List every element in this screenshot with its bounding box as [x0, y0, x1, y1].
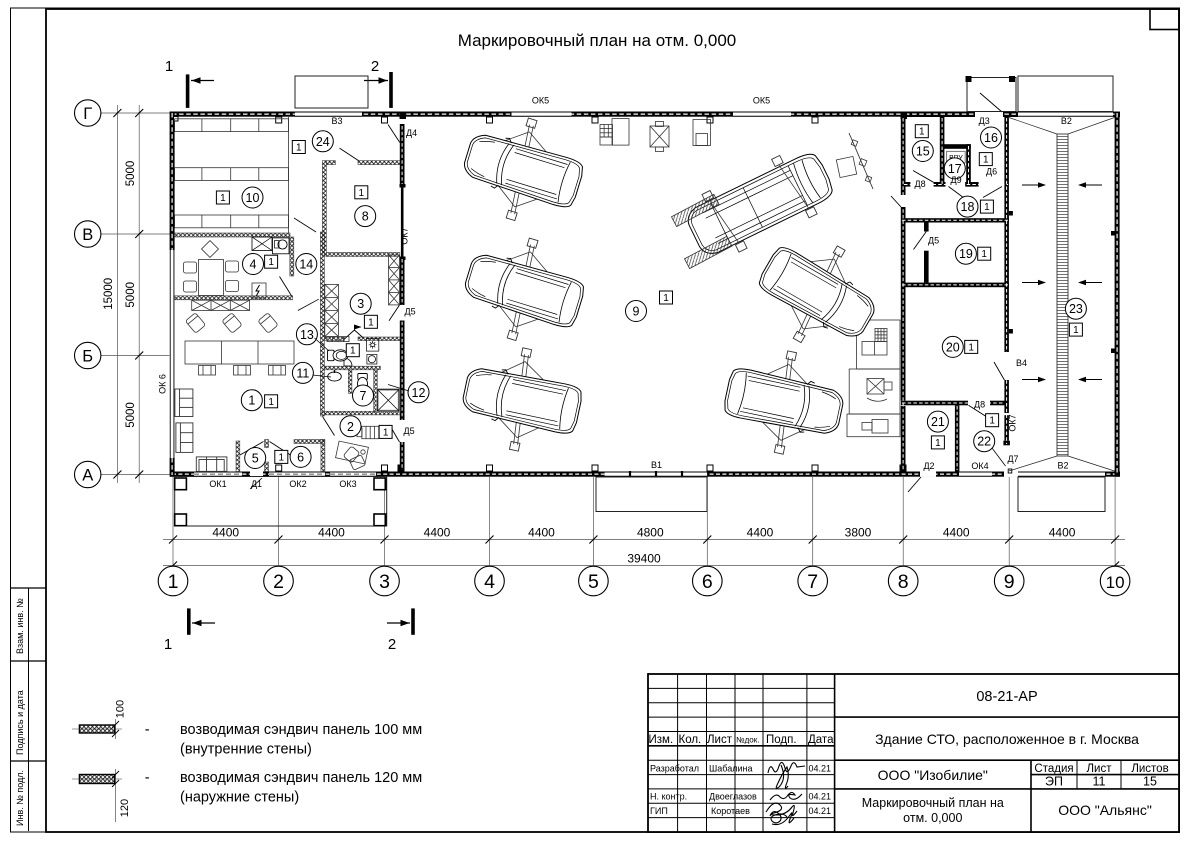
- svg-text:А: А: [82, 467, 93, 485]
- svg-text:5: 5: [252, 452, 259, 466]
- svg-text:Дата: Дата: [808, 734, 834, 746]
- svg-text:21: 21: [931, 415, 945, 429]
- svg-text:1: 1: [268, 397, 274, 408]
- svg-text:Д6: Д6: [986, 167, 997, 177]
- svg-text:16: 16: [984, 131, 998, 145]
- svg-text:4400: 4400: [424, 526, 451, 540]
- svg-text:В1: В1: [651, 460, 662, 470]
- svg-text:Разработал: Разработал: [650, 764, 699, 774]
- svg-text:Кол.: Кол.: [679, 734, 702, 746]
- svg-text:1: 1: [165, 58, 173, 75]
- svg-text:1: 1: [220, 193, 226, 204]
- svg-text:4400: 4400: [943, 526, 970, 540]
- svg-text:1: 1: [663, 293, 669, 304]
- svg-text:4: 4: [250, 258, 257, 272]
- svg-text:1: 1: [168, 571, 179, 593]
- svg-text:Коротаев: Коротаев: [711, 806, 750, 816]
- svg-text:1: 1: [296, 143, 302, 154]
- svg-text:4400: 4400: [747, 526, 774, 540]
- svg-text:1: 1: [383, 427, 389, 438]
- svg-text:Д8: Д8: [974, 400, 985, 410]
- svg-text:Д9: Д9: [951, 175, 962, 185]
- svg-text:Маркировочный план на: Маркировочный план на: [862, 796, 1004, 810]
- svg-text:Листов: Листов: [1131, 763, 1168, 775]
- svg-text:22: 22: [977, 435, 991, 449]
- svg-text:1: 1: [359, 188, 365, 199]
- svg-text:ОК5: ОК5: [753, 96, 770, 106]
- svg-text:4400: 4400: [1049, 526, 1076, 540]
- svg-text:Д7: Д7: [1007, 454, 1018, 464]
- svg-text:Стадия: Стадия: [1034, 763, 1073, 775]
- svg-text:Изм.: Изм.: [649, 734, 674, 746]
- svg-text:Д3: Д3: [979, 116, 990, 126]
- svg-text:(внутренние стены): (внутренние стены): [180, 742, 312, 758]
- svg-text:-: -: [145, 770, 150, 786]
- svg-text:4800: 4800: [637, 526, 664, 540]
- svg-text:2: 2: [371, 58, 379, 75]
- svg-text:04.21: 04.21: [809, 792, 832, 802]
- svg-text:Лист: Лист: [1087, 763, 1113, 775]
- svg-text:5000: 5000: [125, 402, 137, 428]
- svg-text:10: 10: [1106, 573, 1125, 592]
- svg-text:2: 2: [347, 420, 354, 434]
- svg-text:Лист: Лист: [707, 734, 733, 746]
- svg-text:Д2: Д2: [923, 461, 934, 471]
- svg-text:8: 8: [898, 571, 909, 593]
- svg-text:-: -: [145, 722, 150, 738]
- svg-text:ГИП: ГИП: [650, 806, 668, 816]
- svg-text:3800: 3800: [845, 526, 872, 540]
- svg-text:возводимая сэндвич панель 120: возводимая сэндвич панель 120 мм: [180, 770, 422, 786]
- svg-text:6: 6: [702, 571, 713, 593]
- svg-text:04.21: 04.21: [809, 806, 832, 816]
- svg-text:23: 23: [1069, 302, 1083, 316]
- svg-text:4400: 4400: [528, 526, 555, 540]
- svg-text:№док.: №док.: [736, 736, 759, 745]
- svg-text:15: 15: [1143, 775, 1157, 789]
- svg-text:9: 9: [1004, 571, 1015, 593]
- svg-text:В3: В3: [331, 116, 342, 126]
- svg-text:Здание СТО, расположенное в г.: Здание СТО, расположенное в г. Москва: [875, 731, 1139, 747]
- svg-text:ЭП: ЭП: [1045, 775, 1063, 789]
- svg-text:ОК3: ОК3: [339, 479, 356, 489]
- svg-text:1: 1: [1073, 325, 1079, 336]
- svg-text:ООО "Альянс": ООО "Альянс": [1058, 802, 1152, 818]
- svg-text:20: 20: [946, 340, 960, 354]
- svg-text:17: 17: [948, 162, 962, 176]
- svg-text:ОК1: ОК1: [209, 479, 226, 489]
- svg-text:5000: 5000: [125, 161, 137, 187]
- svg-text:5: 5: [588, 571, 599, 593]
- svg-text:Инв. № подл.: Инв. № подл.: [15, 770, 25, 826]
- svg-text:1: 1: [984, 202, 990, 213]
- svg-text:Д5: Д5: [928, 236, 939, 246]
- svg-text:1: 1: [279, 452, 285, 463]
- svg-text:9: 9: [633, 305, 640, 319]
- svg-text:1: 1: [268, 257, 274, 268]
- svg-text:12: 12: [412, 386, 426, 400]
- svg-text:39400: 39400: [627, 552, 661, 566]
- svg-text:6: 6: [297, 450, 304, 464]
- svg-text:Маркировочный план на отм. 0,0: Маркировочный план на отм. 0,000: [458, 31, 737, 50]
- svg-text:ОК7: ОК7: [1008, 414, 1018, 431]
- svg-text:В2: В2: [1057, 461, 1068, 471]
- svg-text:1: 1: [919, 127, 925, 138]
- svg-text:4: 4: [484, 571, 495, 593]
- svg-text:4400: 4400: [212, 526, 239, 540]
- svg-text:ОК5: ОК5: [532, 96, 549, 106]
- svg-text:Д5: Д5: [405, 307, 416, 317]
- svg-text:8: 8: [362, 210, 369, 224]
- svg-text:ОК4: ОК4: [971, 461, 988, 471]
- svg-text:ОК7: ОК7: [400, 227, 410, 244]
- svg-text:Н. контр.: Н. контр.: [650, 792, 687, 802]
- svg-text:11: 11: [1093, 775, 1106, 789]
- svg-text:04.21: 04.21: [809, 764, 832, 774]
- svg-text:Подп.: Подп.: [766, 734, 797, 746]
- svg-text:В4: В4: [1016, 358, 1027, 368]
- svg-text:В2: В2: [1061, 116, 1072, 126]
- svg-text:1: 1: [164, 636, 172, 653]
- svg-text:Подпись и дата: Подпись и дата: [15, 690, 25, 755]
- svg-text:Взам. инв. №: Взам. инв. №: [15, 598, 25, 654]
- svg-text:13: 13: [300, 328, 314, 342]
- svg-text:Двоеглазов: Двоеглазов: [709, 792, 757, 802]
- svg-text:отм. 0,000: отм. 0,000: [903, 811, 962, 825]
- svg-text:(наружние стены): (наружние стены): [180, 790, 299, 806]
- svg-text:возводимая сэндвич панель 100: возводимая сэндвич панель 100 мм: [180, 722, 422, 738]
- svg-text:19: 19: [959, 247, 973, 261]
- svg-text:Д1: Д1: [251, 479, 262, 489]
- svg-text:3: 3: [357, 297, 364, 311]
- svg-text:11: 11: [296, 366, 309, 380]
- svg-text:7: 7: [807, 571, 818, 593]
- svg-text:ОК2: ОК2: [289, 479, 306, 489]
- svg-text:4400: 4400: [318, 526, 345, 540]
- svg-text:1: 1: [989, 416, 995, 427]
- svg-text:Б: Б: [82, 348, 93, 366]
- svg-text:ООО "Изобилие": ООО "Изобилие": [878, 767, 988, 783]
- svg-text:24: 24: [316, 135, 330, 149]
- svg-text:Д4: Д4: [406, 128, 417, 138]
- svg-text:1: 1: [983, 155, 989, 166]
- svg-text:ОК 6: ОК 6: [158, 374, 168, 394]
- svg-text:120: 120: [119, 799, 131, 817]
- svg-text:1: 1: [935, 438, 941, 449]
- svg-text:Д5: Д5: [404, 426, 415, 436]
- svg-text:1: 1: [248, 394, 255, 408]
- svg-text:3: 3: [379, 571, 390, 593]
- svg-text:15000: 15000: [103, 278, 115, 310]
- svg-text:08-21-АР: 08-21-АР: [976, 689, 1037, 705]
- svg-text:7: 7: [360, 389, 367, 403]
- svg-text:В: В: [82, 226, 93, 244]
- svg-text:1: 1: [350, 346, 356, 357]
- svg-text:1: 1: [968, 342, 974, 353]
- svg-text:14: 14: [299, 258, 313, 272]
- svg-text:5000: 5000: [125, 282, 137, 308]
- svg-text:100: 100: [115, 700, 127, 718]
- svg-text:2: 2: [388, 636, 396, 653]
- svg-text:Шабалина: Шабалина: [709, 764, 752, 774]
- svg-text:Д8: Д8: [915, 179, 926, 189]
- svg-text:Г: Г: [83, 105, 92, 123]
- svg-text:18: 18: [961, 200, 975, 214]
- svg-text:1: 1: [981, 249, 987, 260]
- svg-text:2: 2: [273, 571, 284, 593]
- svg-text:10: 10: [246, 191, 260, 205]
- svg-text:15: 15: [916, 145, 930, 159]
- svg-text:1: 1: [368, 317, 374, 328]
